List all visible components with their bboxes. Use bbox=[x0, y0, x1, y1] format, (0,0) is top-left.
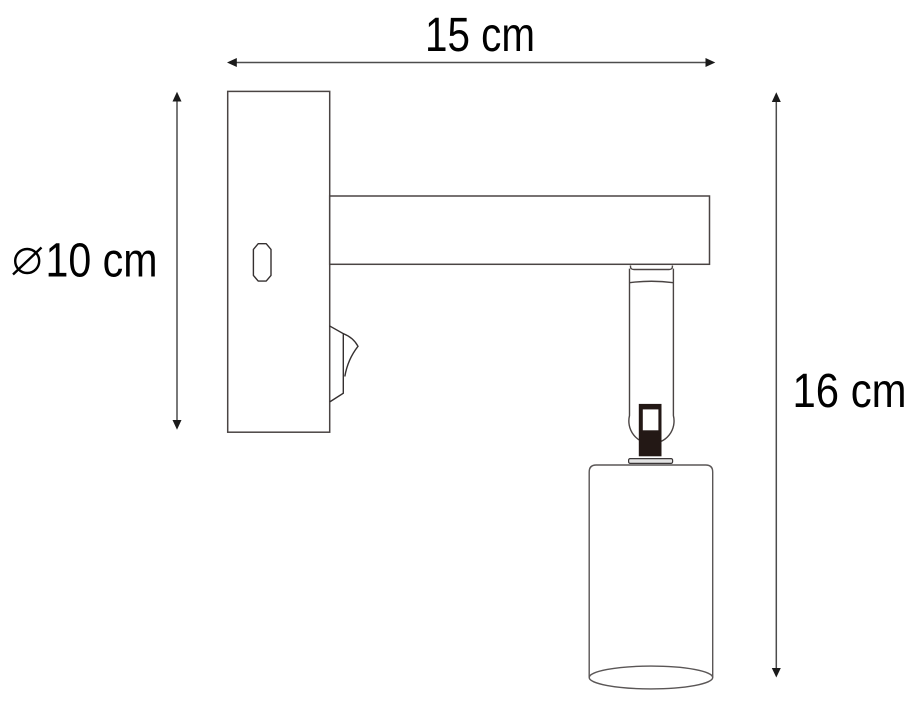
svg-text:15 cm: 15 cm bbox=[425, 9, 535, 62]
svg-text:16 cm: 16 cm bbox=[793, 365, 907, 418]
svg-text:10 cm: 10 cm bbox=[46, 235, 158, 288]
